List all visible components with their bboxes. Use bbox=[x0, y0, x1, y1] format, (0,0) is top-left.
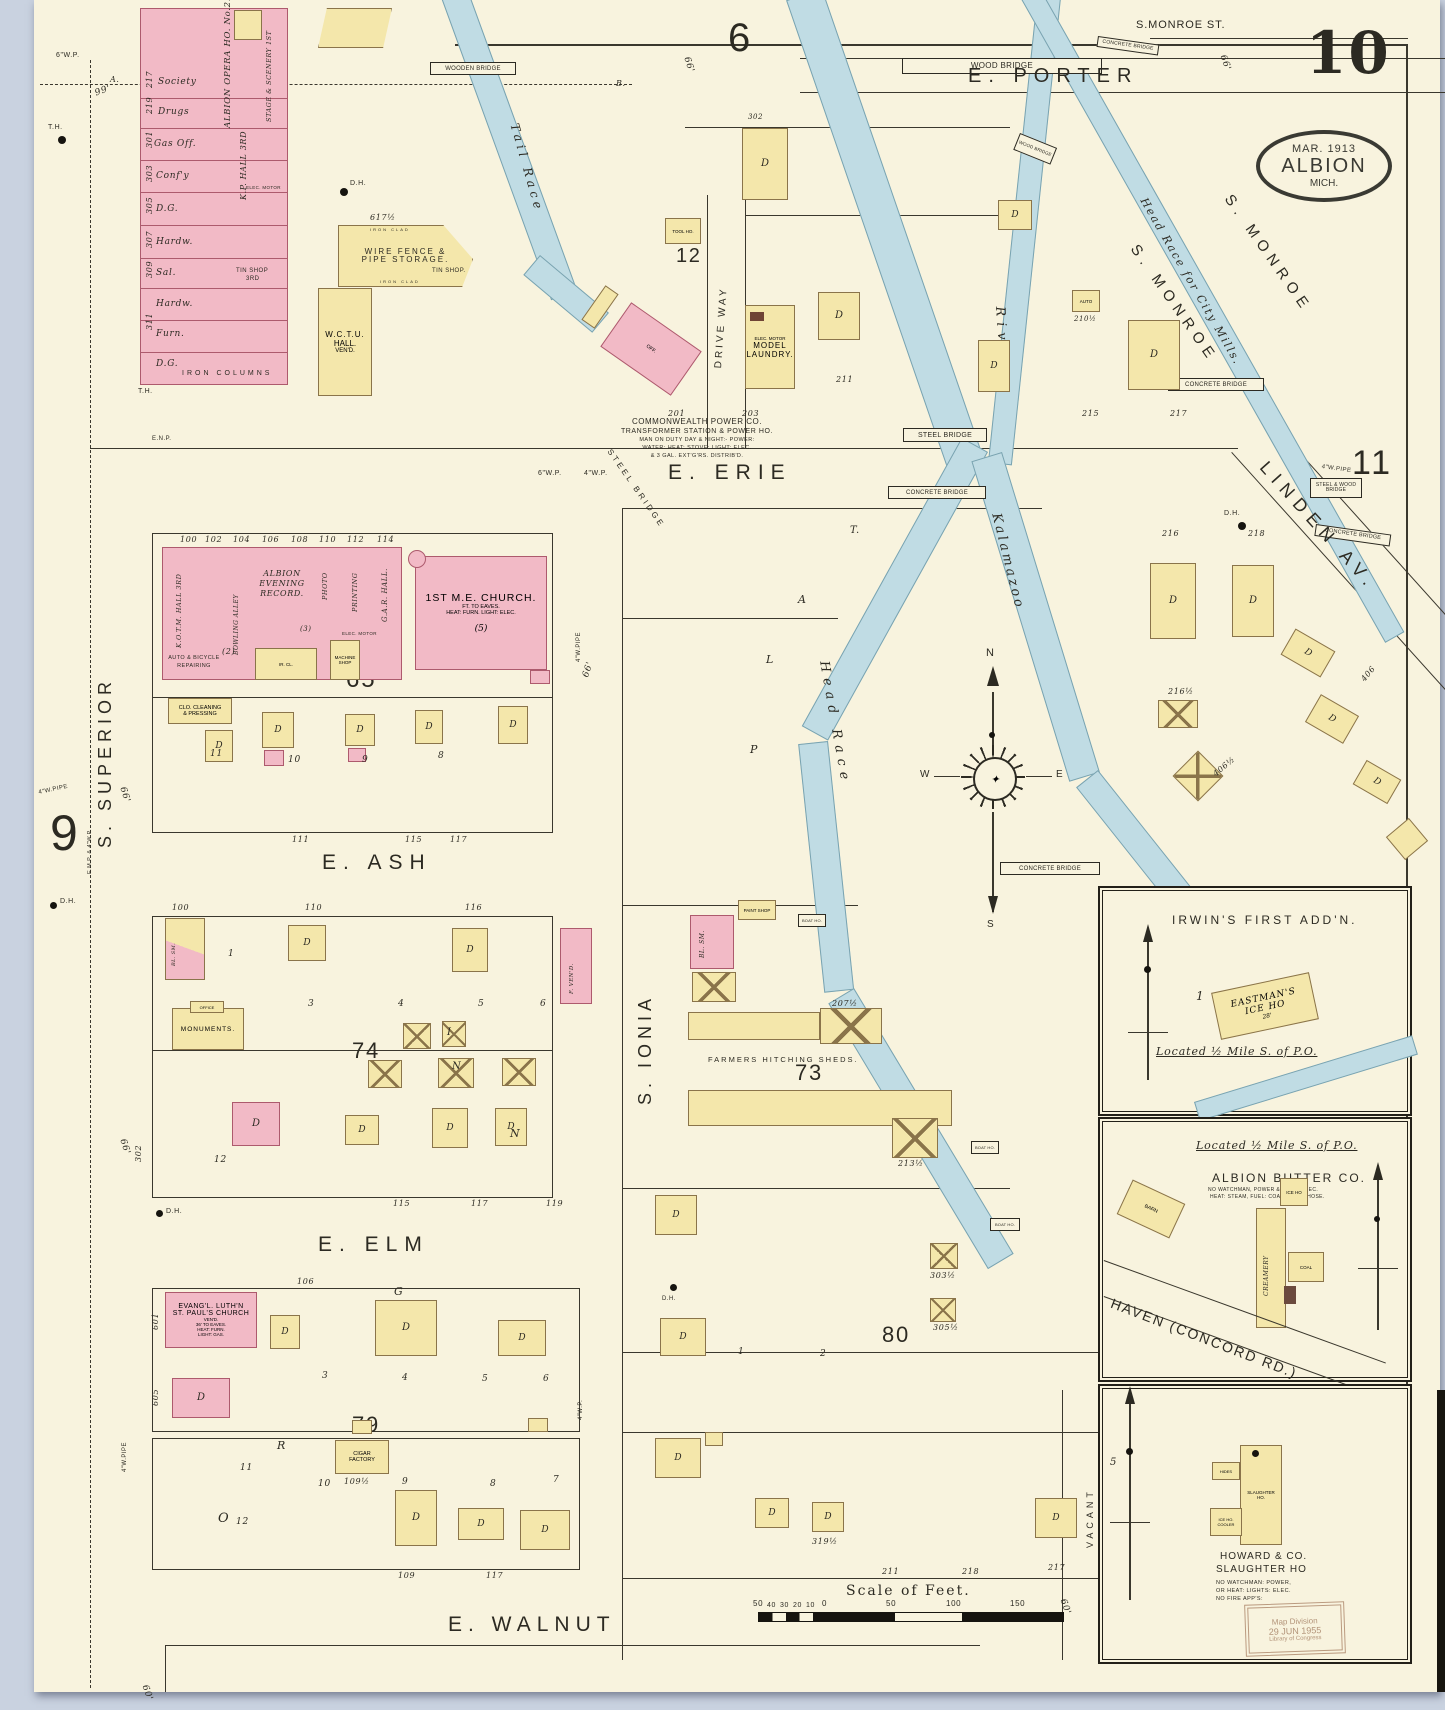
block-80-bottom bbox=[622, 1432, 1148, 1433]
farmers-sheds-label: FARMERS HITCHING SHEDS. bbox=[708, 1056, 859, 1064]
house-number-201: 201 bbox=[668, 410, 685, 418]
ionia-east-line bbox=[622, 508, 623, 1660]
dwelling-80d: D bbox=[755, 1498, 789, 1528]
dwelling-65d: D bbox=[415, 710, 443, 744]
dwelling-79b: D bbox=[375, 1300, 437, 1356]
commonwealth-line-5: & 3 GAL. EXT'G'RS. DISTRIB'D. bbox=[624, 454, 770, 460]
monuments-office: OFFICE bbox=[190, 1001, 224, 1013]
hn-109: 109 bbox=[398, 1572, 415, 1580]
dwelling-monroe-1: D bbox=[998, 200, 1032, 230]
house-number-302-block12: 302 bbox=[748, 114, 763, 121]
street-letter-r: R bbox=[277, 1440, 286, 1451]
hn-305h: 305½ bbox=[933, 1324, 959, 1332]
street-letter-g: G bbox=[394, 1286, 404, 1297]
shed-305h bbox=[930, 1298, 956, 1322]
plat-letter-l: L bbox=[766, 654, 774, 665]
note-wpipe4-superior: 4"W.PIPE bbox=[122, 1442, 128, 1472]
opera-div-9 bbox=[140, 352, 288, 353]
shed-74a bbox=[403, 1023, 431, 1049]
commonwealth-line-3: MAN ON DUTY DAY & NIGHT:- POWER: bbox=[624, 438, 770, 444]
opera-div-4 bbox=[140, 192, 288, 193]
compass-s: S bbox=[987, 920, 994, 930]
howard-arrow-dot bbox=[1126, 1448, 1133, 1455]
compass-inner-circle: ✦ bbox=[973, 757, 1017, 801]
hides-shed: HIDES bbox=[1212, 1462, 1240, 1480]
annex-80c bbox=[705, 1432, 723, 1446]
dh-dot-2 bbox=[50, 902, 57, 909]
dwelling-79c: D bbox=[498, 1320, 546, 1356]
bottom-row-line bbox=[622, 1578, 1148, 1579]
house-number-216h: 216½ bbox=[1168, 688, 1194, 696]
hn-302: 302 bbox=[135, 1145, 143, 1162]
street-vacant: VACANT bbox=[1086, 1488, 1095, 1548]
lot-6-79: 6 bbox=[543, 1375, 549, 1384]
dwelling-74c: D bbox=[345, 1115, 379, 1145]
note-a: A. bbox=[110, 76, 120, 84]
dwelling-glyph: D bbox=[1169, 596, 1177, 606]
date-stamp-oval: MAR. 1913 ALBION MICH. bbox=[1256, 130, 1392, 202]
boat-house-3: BOAT HO. bbox=[990, 1218, 1020, 1231]
howard-arrow-cross bbox=[1110, 1522, 1150, 1523]
butter-located-note: Located ½ Mile S. of P.O. bbox=[1196, 1140, 1357, 1151]
irwins-arrow-dot bbox=[1144, 966, 1151, 973]
lutheran-1: EVANG'L. LUTH'N bbox=[178, 1303, 243, 1310]
iron-clad-bottom: IRON CLAD bbox=[380, 280, 420, 284]
street-s-superior: S. SUPERIOR bbox=[96, 677, 114, 848]
hn-307: 307 bbox=[146, 231, 154, 248]
dwelling-linden-1: D bbox=[1150, 563, 1196, 639]
model-laundry-2: LAUNDRY. bbox=[746, 350, 793, 359]
opera-div-3 bbox=[140, 160, 288, 161]
hn-109h: 109½ bbox=[344, 1478, 370, 1486]
commonwealth-line-2: TRANSFORMER STATION & POWER HO. bbox=[616, 428, 778, 435]
paint-shop-building: PAINT SHOP bbox=[738, 900, 776, 920]
walnut-south-corner bbox=[165, 1645, 166, 1692]
butter-coal-label: COAL bbox=[1300, 1265, 1312, 1270]
butter-arrow-cross bbox=[1358, 1268, 1398, 1269]
scale-bar-seg1 bbox=[826, 1612, 896, 1622]
block-73-number: 73 bbox=[795, 1062, 823, 1084]
plat-letter-a: A bbox=[798, 594, 807, 605]
scale-tick-30: 30 bbox=[780, 1602, 789, 1609]
inset-butter-co bbox=[1098, 1117, 1412, 1382]
scale-tick-100: 100 bbox=[946, 1600, 961, 1608]
kotm-hall-label: K.O.T.M. HALL 3RD bbox=[176, 574, 183, 648]
paint-shop-label: PAINT SHOP bbox=[744, 908, 771, 913]
lot-7-79: 7 bbox=[553, 1476, 559, 1485]
lot-5-79: 5 bbox=[482, 1375, 488, 1384]
hn-303: 303 bbox=[146, 165, 154, 182]
cigar-factory-building: CIGAR FACTORY bbox=[335, 1440, 389, 1474]
scan-edge-strip bbox=[1437, 1390, 1445, 1692]
eastman-dim: 28' bbox=[1262, 1011, 1273, 1020]
hn-110b: 110 bbox=[305, 904, 322, 912]
hn-116: 116 bbox=[465, 904, 482, 912]
iron-clad-top: IRON CLAD bbox=[370, 228, 410, 232]
hn-605: 605 bbox=[152, 1389, 160, 1406]
dwelling-79f: D bbox=[520, 1510, 570, 1550]
hn-117: 117 bbox=[450, 836, 467, 844]
store-furniture: Furn. bbox=[156, 330, 185, 339]
scale-tick-150: 150 bbox=[1010, 1600, 1025, 1608]
street-letter-n2: N bbox=[452, 1062, 462, 1072]
note-enp: E.N.P. bbox=[152, 436, 171, 442]
scale-tick-50r: 50 bbox=[886, 1600, 896, 1608]
butter-boiler-dark bbox=[1284, 1286, 1296, 1304]
note-b: B. bbox=[616, 80, 626, 88]
tool-house-building: TOOL HO. bbox=[665, 218, 701, 244]
dwelling-glyph: D bbox=[761, 159, 769, 169]
dwelling-glyph: D bbox=[1327, 713, 1338, 724]
dwelling-glyph: D bbox=[990, 362, 997, 371]
dwelling-glyph: D bbox=[274, 726, 281, 735]
monuments-label: MONUMENTS. bbox=[181, 1026, 235, 1033]
dwelling-79-brick: D bbox=[172, 1378, 230, 1418]
butter-ice-label: ICE HO bbox=[1286, 1190, 1302, 1195]
howard-north-shaft bbox=[1129, 1402, 1131, 1600]
adjacent-sheet-11: 11 bbox=[1352, 446, 1393, 480]
dwelling-glyph: D bbox=[1150, 350, 1158, 360]
hn-100b: 100 bbox=[172, 904, 189, 912]
store-hardware-1: Hardw. bbox=[156, 238, 193, 247]
walnut-south-line bbox=[165, 1645, 980, 1646]
yellow-annex-top bbox=[234, 10, 262, 40]
street-s-monroe-st: S.MONROE ST. bbox=[1136, 20, 1225, 31]
note-th-2: T.H. bbox=[138, 388, 153, 395]
dwelling-linden-2: D bbox=[1232, 565, 1274, 637]
store-hardware-2: Hardw. bbox=[156, 300, 193, 309]
me-church-count: (5) bbox=[475, 624, 488, 634]
office-label: OFFICE bbox=[200, 1005, 215, 1010]
dwelling-glyph: D bbox=[672, 1211, 679, 1220]
lot-12-79: 12 bbox=[236, 1518, 249, 1527]
house-number-210h: 210½ bbox=[1074, 316, 1096, 323]
dwelling-glyph: D bbox=[1303, 647, 1314, 658]
hn-117b: 117 bbox=[486, 1572, 503, 1580]
note-dh-1: D.H. bbox=[350, 180, 366, 187]
wooden-bridge-top-left: WOODEN BRIDGE bbox=[430, 62, 516, 75]
hn-301: 301 bbox=[146, 131, 154, 148]
shed-74e bbox=[502, 1058, 536, 1086]
dwelling-79a: D bbox=[270, 1315, 300, 1349]
scale-bar-left bbox=[758, 1612, 828, 1622]
butter-north-arrowhead bbox=[1373, 1162, 1383, 1180]
boat-house-2: BOAT HO. bbox=[971, 1141, 999, 1154]
blacksmith-ionia bbox=[690, 915, 734, 969]
howard-sub-3: NO FIRE APP'S: bbox=[1216, 1597, 1263, 1603]
elec-motor-opera: ELEC. MOTOR bbox=[246, 186, 281, 191]
butter-north-shaft bbox=[1377, 1178, 1379, 1330]
model-laundry-1: MODEL bbox=[753, 341, 786, 350]
auto-repair-1: AUTO & BICYCLE bbox=[164, 656, 224, 662]
store-dry-goods-2: D.G. bbox=[156, 360, 178, 369]
machine-shop-annex: MACHINE SHOP bbox=[330, 640, 360, 680]
hn-102: 102 bbox=[205, 536, 222, 544]
shed-213h bbox=[892, 1118, 938, 1158]
porter-south-line bbox=[800, 92, 1445, 93]
dwelling-glyph: D bbox=[679, 1333, 686, 1342]
tin-shop-3rd-a: TIN SHOP bbox=[236, 268, 268, 274]
church-tower-round bbox=[408, 550, 426, 568]
dwelling-80b: D bbox=[660, 1318, 706, 1356]
street-letter-i: I bbox=[447, 1028, 452, 1038]
dwelling-80f: D bbox=[1035, 1498, 1077, 1538]
dwelling-glyph: D bbox=[197, 1393, 205, 1403]
evening-record-3: RECORD. bbox=[256, 590, 308, 598]
gar-hall-label: G.A.R. HALL. bbox=[382, 568, 389, 622]
hn-106b: 106 bbox=[297, 1278, 314, 1286]
adjacent-sheet-9: 9 bbox=[50, 808, 82, 858]
store-dry-goods-1: D.G. bbox=[156, 205, 178, 214]
opera-div-6 bbox=[140, 258, 288, 259]
dh-dot-4 bbox=[670, 1284, 677, 1291]
yellow-trapezoid-building bbox=[318, 8, 392, 48]
sanborn-map-sheet: Tail Race River. Kalamazoo Head Race Hea… bbox=[0, 0, 1445, 1710]
dwelling-monroe-3: D bbox=[1128, 320, 1180, 390]
note-emp-left: E.M.P. & 4"W.P. bbox=[88, 829, 94, 874]
butter-arrow-dot bbox=[1374, 1216, 1380, 1222]
house-number-217b: 217 bbox=[1170, 410, 1187, 418]
dwelling-glyph: D bbox=[356, 726, 363, 735]
dwelling-glyph: D bbox=[466, 946, 473, 955]
loc-stamp-line-3: Library of Congress bbox=[1269, 1635, 1322, 1643]
map-border-left-dashed bbox=[90, 60, 91, 1688]
street-e-ash: E. ASH bbox=[322, 852, 432, 873]
howard-sub-1: NO WATCHMAN: POWER, bbox=[1216, 1581, 1291, 1587]
lot-11: 11 bbox=[210, 750, 223, 759]
lot-12-74: 12 bbox=[214, 1156, 227, 1165]
lutheran-2: ST. PAUL'S CHURCH bbox=[173, 1310, 250, 1317]
scale-tick-50l: 50 bbox=[753, 1600, 763, 1608]
store-drugs: Drugs bbox=[158, 108, 189, 117]
wire-fence-label-2: PIPE STORAGE. bbox=[362, 256, 450, 264]
opera-div-2 bbox=[140, 128, 288, 129]
shed-74c bbox=[368, 1060, 402, 1088]
irwins-lot-1: 1 bbox=[1196, 990, 1205, 1002]
note-wpipe4-ionia: 4"W.PIPE bbox=[576, 632, 582, 662]
hn-305: 305 bbox=[146, 197, 154, 214]
bowling-alley-label: BOWLING ALLEY bbox=[234, 594, 240, 655]
boiler-room-dark bbox=[750, 312, 764, 321]
elec-motor-65: ELEC. MOTOR bbox=[342, 632, 377, 637]
street-s-ionia: S. IONIA bbox=[636, 994, 654, 1105]
hn-218b: 218 bbox=[962, 1568, 979, 1576]
hn-112: 112 bbox=[347, 536, 364, 544]
scale-title: Scale of Feet. bbox=[846, 1584, 971, 1598]
dwelling-glyph: D bbox=[768, 1509, 775, 1518]
concrete-bridge-south: CONCRETE BRIDGE bbox=[1000, 862, 1100, 875]
auto-label: AUTO bbox=[1080, 299, 1092, 304]
house-number-211: 211 bbox=[836, 376, 853, 384]
opera-div-8 bbox=[140, 320, 288, 321]
compass-east-tick bbox=[1026, 776, 1052, 777]
dwelling-glyph: D bbox=[541, 1526, 548, 1535]
hn-217d: 217 bbox=[1048, 1564, 1065, 1572]
lot-5-74: 5 bbox=[478, 1000, 484, 1009]
dwelling-glyph: D bbox=[358, 1126, 365, 1135]
dwelling-74b: D bbox=[452, 928, 488, 972]
th-dot-1 bbox=[58, 136, 66, 144]
butter-coal-shed: COAL bbox=[1288, 1252, 1324, 1282]
street-e-elm: E. ELM bbox=[318, 1234, 429, 1255]
block-74-number: 74 bbox=[352, 1040, 380, 1062]
hn-303h: 303½ bbox=[930, 1272, 956, 1280]
street-e-walnut: E. WALNUT bbox=[448, 1614, 616, 1635]
slaughter-roof-dot bbox=[1252, 1450, 1259, 1457]
dwelling-glyph: D bbox=[1052, 1514, 1059, 1523]
hn-217: 217 bbox=[146, 71, 154, 88]
dwelling-glyph: D bbox=[674, 1454, 681, 1463]
dh-dot-1 bbox=[340, 188, 348, 196]
howard-cooler-label: COOLER bbox=[1218, 1522, 1235, 1527]
street-e-porter: E. PORTER bbox=[968, 66, 1138, 86]
me-church-name: 1ST M.E. CHURCH. bbox=[426, 592, 537, 604]
hn-601: 601 bbox=[152, 1313, 160, 1330]
tool-house-label: TOOL HO. bbox=[672, 229, 693, 234]
hn-211b: 211 bbox=[882, 1568, 899, 1576]
note-wp6-erie: 6"W.P. bbox=[538, 470, 562, 477]
shed-207h bbox=[820, 1008, 882, 1044]
dwelling-glyph: D bbox=[477, 1520, 484, 1529]
compass-south-spear bbox=[988, 896, 998, 914]
creamery-building bbox=[1256, 1208, 1286, 1328]
compass-monogram: ✦ bbox=[990, 773, 999, 786]
lot-4-79: 4 bbox=[402, 1374, 408, 1383]
note-th-1: T.H. bbox=[48, 124, 63, 131]
shed-74b bbox=[442, 1021, 466, 1047]
hides-label: HIDES bbox=[1220, 1469, 1232, 1474]
street-letter-o: O bbox=[218, 1512, 230, 1525]
evening-record-1: ALBION bbox=[256, 570, 308, 578]
dwelling-65c: D bbox=[345, 714, 375, 746]
irwins-located-note: Located ½ Mile S. of P.O. bbox=[1156, 1046, 1317, 1057]
photo-label: PHOTO bbox=[322, 572, 329, 600]
map-border-top bbox=[455, 44, 1408, 46]
compass-north-arrowhead bbox=[987, 666, 999, 686]
concrete-bridge-monroe: CONCRETE BRIDGE bbox=[1168, 378, 1264, 391]
dwelling-glyph: D bbox=[281, 1328, 288, 1337]
dwelling-monroe-2: D bbox=[978, 340, 1010, 392]
lot-11-79: 11 bbox=[240, 1464, 253, 1473]
note-wp4-ionia-s: 4"W.P. bbox=[578, 1400, 584, 1420]
lot-1-80: 1 bbox=[738, 1348, 744, 1357]
lot-2-80: 2 bbox=[820, 1350, 826, 1359]
albion-opera-house-label: ALBION OPERA HO. No.2. 2ND bbox=[224, 0, 233, 128]
power-office-label: OFF. bbox=[645, 343, 657, 354]
lot-3-74: 3 bbox=[308, 1000, 314, 1009]
lutheran-6: LIGHT: GAS. bbox=[198, 1332, 224, 1337]
street-e-erie: E. ERIE bbox=[668, 462, 792, 483]
evening-record-2: EVENING bbox=[256, 580, 308, 588]
block-73-top bbox=[622, 618, 838, 619]
dwelling-glyph: D bbox=[412, 1513, 420, 1523]
store-society: Society bbox=[158, 78, 197, 87]
scale-bar-seg3 bbox=[962, 1612, 1064, 1622]
house-number-203: 203 bbox=[742, 410, 759, 418]
dwelling-glyph: D bbox=[509, 721, 516, 730]
irwins-north-shaft bbox=[1147, 940, 1149, 1080]
hn-115: 115 bbox=[405, 836, 422, 844]
boat-house-1: BOAT HO. bbox=[798, 914, 826, 927]
iron-clad-annex: IR. CL. bbox=[255, 648, 317, 680]
dh-dot-3 bbox=[156, 1210, 163, 1217]
block-12-number: 12 bbox=[676, 246, 701, 266]
cleaning-building: CLO. CLEANING & PRESSING bbox=[168, 698, 232, 724]
irwins-title: IRWIN'S FIRST ADD'N. bbox=[1172, 914, 1357, 926]
hn-100: 100 bbox=[180, 536, 197, 544]
hn-106: 106 bbox=[262, 536, 279, 544]
hn-119: 119 bbox=[546, 1200, 563, 1208]
lot-5-howard: 5 bbox=[1110, 1458, 1117, 1468]
dwelling-glyph: D bbox=[303, 939, 310, 948]
scale-tick-10: 10 bbox=[806, 1602, 815, 1609]
scale-tick-0: 0 bbox=[822, 1600, 827, 1608]
auto-repair-2: REPAIRING bbox=[164, 664, 224, 670]
hn-311: 311 bbox=[146, 313, 154, 330]
erie-south-line-east bbox=[622, 508, 1042, 509]
dwelling-80c: D bbox=[655, 1438, 701, 1478]
wctu-label-1: W.C.T.U. bbox=[325, 330, 365, 339]
compass-e: E bbox=[1056, 770, 1063, 780]
house-number-617h: 617½ bbox=[370, 214, 396, 222]
brick-annex-65a bbox=[264, 750, 284, 766]
compass-ornament-dot bbox=[989, 732, 995, 738]
dwelling-glyph: D bbox=[518, 1334, 525, 1343]
hn-117c: 117 bbox=[471, 1200, 488, 1208]
scale-tick-20: 20 bbox=[793, 1602, 802, 1609]
wctu-hall-building: W.C.T.U. HALL. VEN'D. bbox=[318, 288, 372, 396]
creamery-label: CREAMERY bbox=[1264, 1256, 1270, 1296]
tin-shop-3rd-b: 3RD bbox=[246, 276, 259, 282]
opera-div-5 bbox=[140, 225, 288, 226]
lot-6-74: 6 bbox=[540, 1000, 546, 1009]
howard-title-2: SLAUGHTER HO bbox=[1216, 1565, 1307, 1575]
me-church-building: 1ST M.E. CHURCH. FT. TO EAVES. HEAT: FUR… bbox=[415, 556, 547, 670]
note-dh-2: D.H. bbox=[60, 898, 76, 905]
butter-ice-house: ICE HO bbox=[1280, 1178, 1308, 1206]
section-line-a-b bbox=[40, 84, 632, 85]
plat-letter-t: T. bbox=[850, 526, 860, 536]
blacksmith-label-74: BL. SM. bbox=[172, 943, 177, 966]
hn-108: 108 bbox=[291, 536, 308, 544]
small-annex-79b bbox=[528, 1418, 548, 1432]
store-gas-office: Gas Off. bbox=[154, 140, 196, 149]
store-confectionery: Conf'y bbox=[156, 172, 189, 181]
hn-104: 104 bbox=[233, 536, 250, 544]
compass-west-tick bbox=[934, 776, 960, 777]
cigar-2: FACTORY bbox=[349, 1457, 375, 1463]
dwelling-glyph: D bbox=[1011, 211, 1018, 220]
me-church-heat: HEAT: FURN. LIGHT: ELEC. bbox=[446, 610, 516, 616]
stage-scenery-label: STAGE & SCENERY 1ST bbox=[266, 31, 273, 122]
machine-label-2: SHOP bbox=[339, 660, 352, 665]
ir-cl-label: IR. CL. bbox=[279, 662, 293, 667]
cleaning-2: & PRESSING bbox=[183, 711, 217, 717]
street-letter-n: N bbox=[510, 1128, 521, 1139]
sheet-number: 10 bbox=[1306, 24, 1391, 82]
dwelling-block12: D bbox=[742, 128, 788, 200]
scale-bar-seg2 bbox=[894, 1612, 964, 1622]
dwelling-erie-n1: D bbox=[818, 292, 860, 340]
note-2-units: (2) bbox=[222, 648, 235, 656]
hitching-shed-row-1 bbox=[688, 1012, 820, 1040]
dwelling-74a: D bbox=[288, 925, 326, 961]
note-3-units: (3) bbox=[300, 626, 312, 633]
house-number-216: 216 bbox=[1162, 530, 1179, 538]
monuments-building: MONUMENTS. bbox=[172, 1008, 244, 1050]
shed-73a bbox=[692, 972, 736, 1002]
hn-110: 110 bbox=[319, 536, 336, 544]
